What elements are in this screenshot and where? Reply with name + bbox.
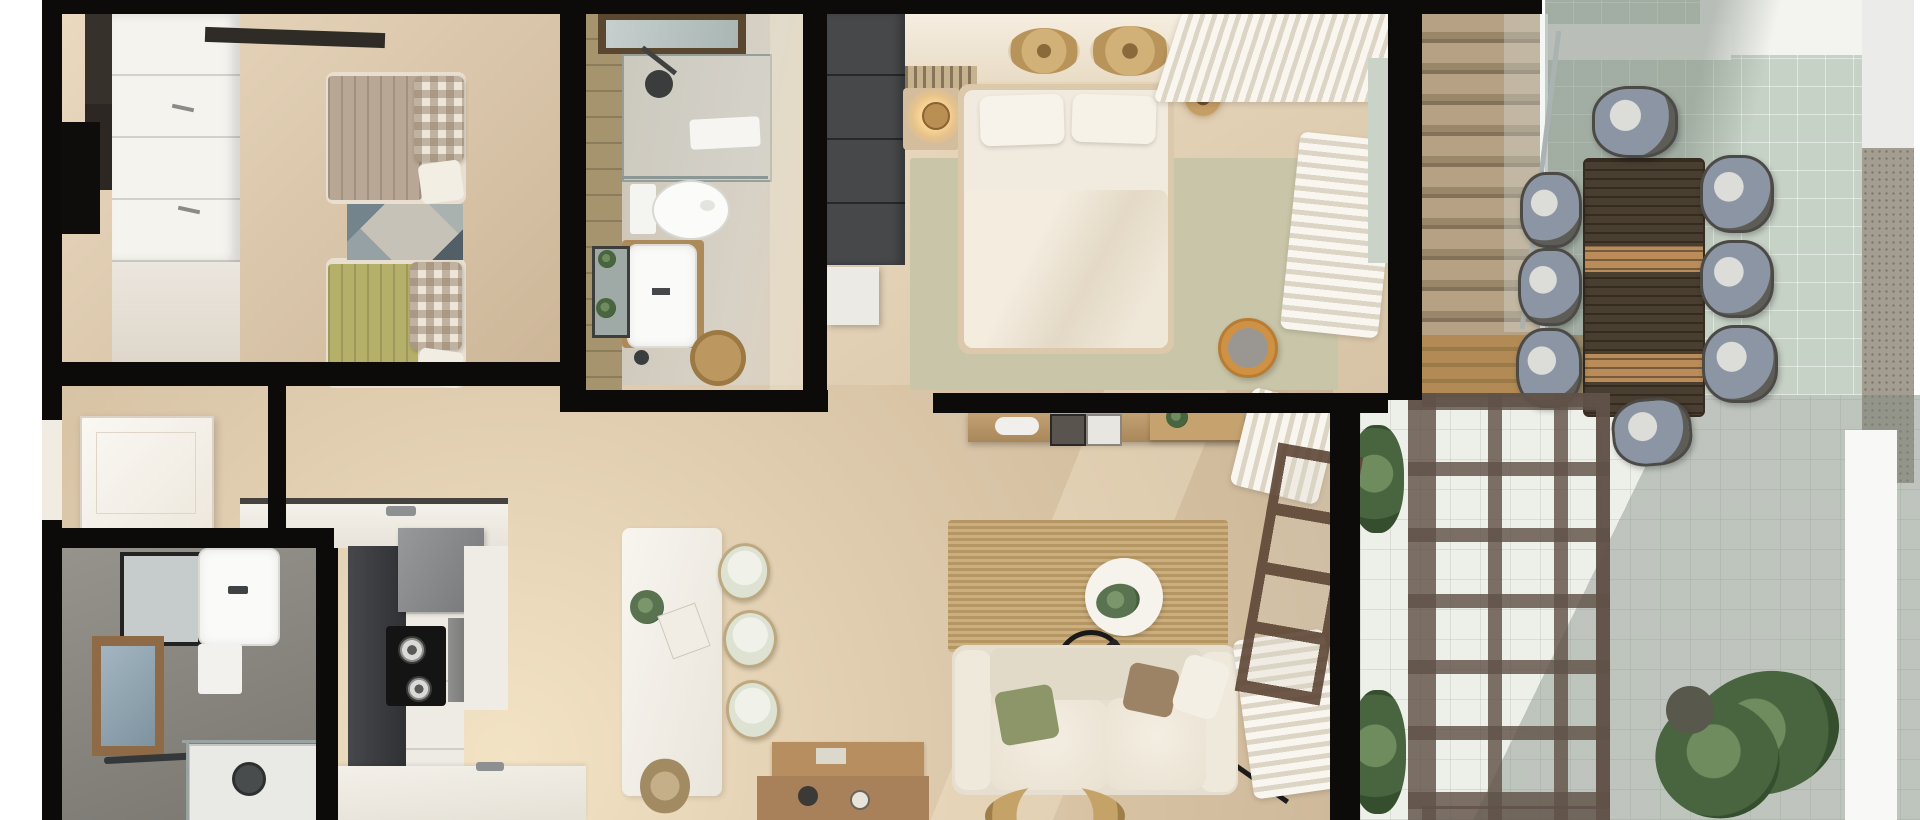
kitchen-sink-faucet <box>386 506 416 516</box>
dried-plant-decor <box>640 758 690 814</box>
bedroom1-geometric-rug <box>347 204 463 260</box>
media-console-base <box>757 776 929 820</box>
outdoor-chair-right-2 <box>1700 240 1774 318</box>
bathroom2-faucet <box>228 586 248 594</box>
terrace-palm-pot <box>1666 686 1714 734</box>
sunlit-wall-strip <box>1845 430 1897 820</box>
bathroom1-round-rug <box>690 330 746 386</box>
bathroom2-glass-horizontal <box>182 740 316 743</box>
shower-bench <box>689 116 760 150</box>
mirror-plant-bottom <box>596 298 616 318</box>
shelf-picture-light <box>1086 414 1122 446</box>
wall-master-right <box>1388 0 1422 400</box>
bathroom2-window-glass <box>101 646 155 746</box>
bathroom2-wall-cabinet <box>198 644 242 694</box>
twin-bed-1-blanket <box>328 76 422 200</box>
island-faucet <box>476 762 504 771</box>
entry-threshold <box>42 420 62 520</box>
console-box-deco <box>816 748 846 764</box>
dining-table <box>622 528 722 796</box>
pergola-lattice <box>1408 393 1610 820</box>
bathroom1-sunlit-strip <box>770 12 803 392</box>
master-pillow-right <box>1071 94 1157 145</box>
bathroom2-glass-vertical <box>186 742 189 820</box>
wall-bedroom1-bottom <box>62 362 562 386</box>
cooktop-pot-2 <box>406 676 432 702</box>
shower-head <box>645 70 673 98</box>
toilet-flush-button <box>700 200 715 211</box>
twin-bed-1-gingham-pillow <box>414 76 464 162</box>
master-closet-dark <box>827 12 905 265</box>
wall-hall-bathroom2 <box>42 528 334 548</box>
shelf-storage-box <box>995 417 1039 435</box>
outdoor-chair-right-3 <box>1702 325 1778 403</box>
bedroom1-wardrobe <box>112 14 240 262</box>
twin-bed-1-throw <box>417 159 464 204</box>
toilet-bowl <box>652 180 730 240</box>
media-console-top <box>772 742 924 778</box>
wall-living-right <box>1330 395 1360 820</box>
cooktop-pot-1 <box>398 636 426 664</box>
kitchen-counter-return <box>464 546 508 710</box>
bedroom1-lower-cabinet <box>112 262 240 368</box>
wall-outer-left-lower <box>42 520 62 820</box>
sofa-pillow-brown <box>1122 661 1181 718</box>
wall-outer-left-upper <box>42 0 62 420</box>
wall-hall-right <box>268 386 286 532</box>
floorplan-stage <box>0 0 1920 820</box>
master-window-right <box>1368 58 1390 263</box>
wall-medallion-large <box>1090 26 1170 76</box>
outdoor-chair-left-2 <box>1518 248 1582 326</box>
master-dresser <box>827 267 879 325</box>
wall-bathroom2-right <box>316 548 338 820</box>
wall-master-bottom <box>933 393 1388 413</box>
console-camera-deco <box>798 786 818 806</box>
kitchen-island <box>338 766 586 820</box>
bathroom2-sink <box>198 548 280 646</box>
outdoor-chair-right-1 <box>1700 155 1774 233</box>
outdoor-dining-table <box>1583 158 1705 417</box>
bathroom1-window-glass <box>606 20 738 48</box>
wall-top-stairs <box>1424 0 1542 14</box>
wall-medallion-small <box>1008 28 1080 74</box>
mirror-plant-top <box>598 250 616 268</box>
vanity-faucet <box>652 288 670 295</box>
sofa-pillow-green <box>994 683 1060 746</box>
outdoor-chair-top <box>1592 86 1678 158</box>
twin-bed-2-gingham-pillow <box>410 262 462 350</box>
nightstand-lamp <box>922 102 950 130</box>
master-pouf <box>1218 318 1278 378</box>
master-duvet <box>964 190 1168 348</box>
wall-bathroom1-bottom <box>560 390 828 412</box>
outdoor-chair-left-1 <box>1520 172 1582 248</box>
bathroom2-mirror <box>120 552 202 646</box>
wall-top-right-white <box>1862 0 1914 148</box>
wall-top <box>42 0 1424 14</box>
sofa-arm-left <box>955 650 991 790</box>
wall-bathroom1-master <box>803 0 827 412</box>
shower-screen-line <box>622 176 768 179</box>
console-clock-deco <box>850 790 870 810</box>
master-pillow-left <box>979 94 1065 147</box>
wall-bedroom1-bathroom1 <box>560 0 586 412</box>
vanity-sink <box>627 244 697 348</box>
toilet-brush <box>634 350 649 365</box>
entry-door-panel <box>96 432 196 514</box>
bedroom1-black-niche <box>62 122 100 234</box>
shelf-picture-dark <box>1050 414 1086 446</box>
bathroom2-shower-drain <box>232 762 266 796</box>
